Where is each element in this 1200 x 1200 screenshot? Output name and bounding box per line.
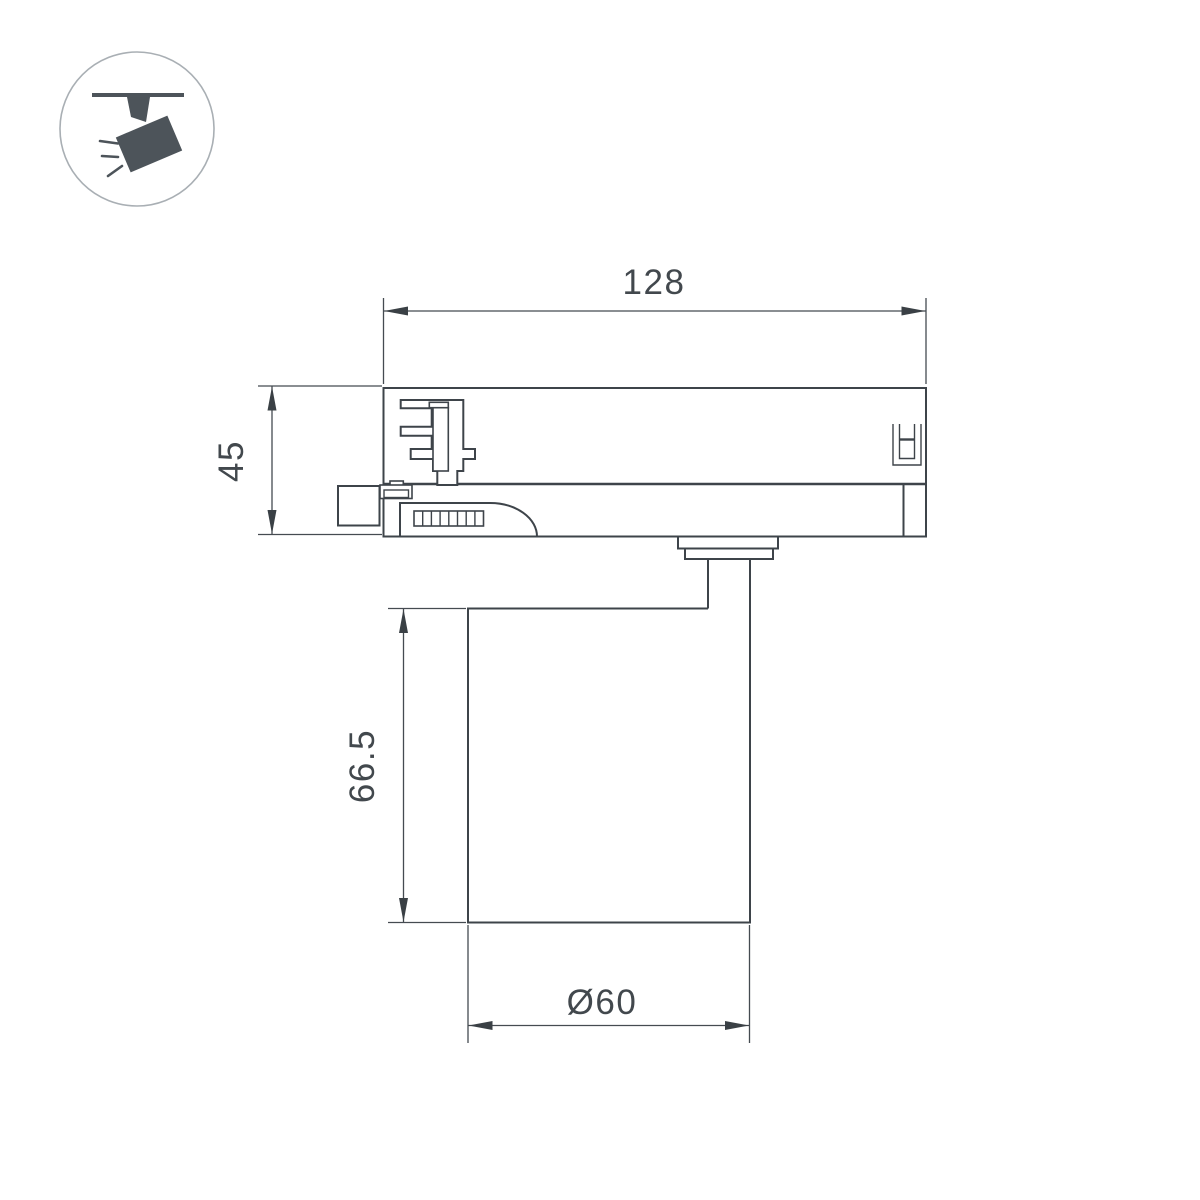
arrow-left-60 bbox=[469, 1021, 493, 1030]
arrow-right-128 bbox=[902, 307, 926, 316]
ceiling-line bbox=[92, 93, 184, 97]
track-adapter bbox=[338, 388, 926, 537]
dim-label-45: 45 bbox=[212, 440, 251, 482]
contact-stem bbox=[433, 408, 448, 471]
arrow-top-66-5 bbox=[399, 609, 408, 633]
ext-lines-66-5 bbox=[388, 609, 466, 923]
dimension-body-height: 66.5 bbox=[343, 609, 466, 923]
swivel-stem bbox=[678, 537, 778, 609]
arrow-right-60 bbox=[725, 1021, 749, 1030]
arrow-left-128 bbox=[384, 307, 408, 316]
stem-flange-upper bbox=[678, 537, 778, 549]
arrow-bottom-45 bbox=[268, 510, 277, 534]
dimension-adapter-width: 128 bbox=[384, 263, 927, 384]
arrow-top-45 bbox=[268, 387, 277, 411]
stem-sides bbox=[708, 559, 750, 609]
track-light-dimension-drawing: 128 45 66.5 Ø60 bbox=[0, 0, 1200, 1200]
latch-left-block bbox=[338, 486, 380, 526]
stem-flange-lower bbox=[685, 549, 773, 560]
lamp-body-drawing bbox=[468, 609, 750, 923]
dimension-body-diameter: Ø60 bbox=[468, 925, 750, 1043]
drawing-svg: 128 45 66.5 Ø60 bbox=[0, 0, 1200, 1200]
contact-cap bbox=[429, 402, 448, 407]
dim-label-60: Ø60 bbox=[567, 983, 638, 1022]
dim-label-66-5: 66.5 bbox=[343, 729, 382, 803]
ribbed-slider bbox=[414, 511, 484, 526]
latch-clip-outer bbox=[380, 485, 412, 499]
lamp-body-outline bbox=[468, 609, 750, 923]
track-light-icon bbox=[60, 52, 214, 206]
arrow-bottom-66-5 bbox=[399, 898, 408, 922]
dim-label-128: 128 bbox=[623, 263, 686, 302]
